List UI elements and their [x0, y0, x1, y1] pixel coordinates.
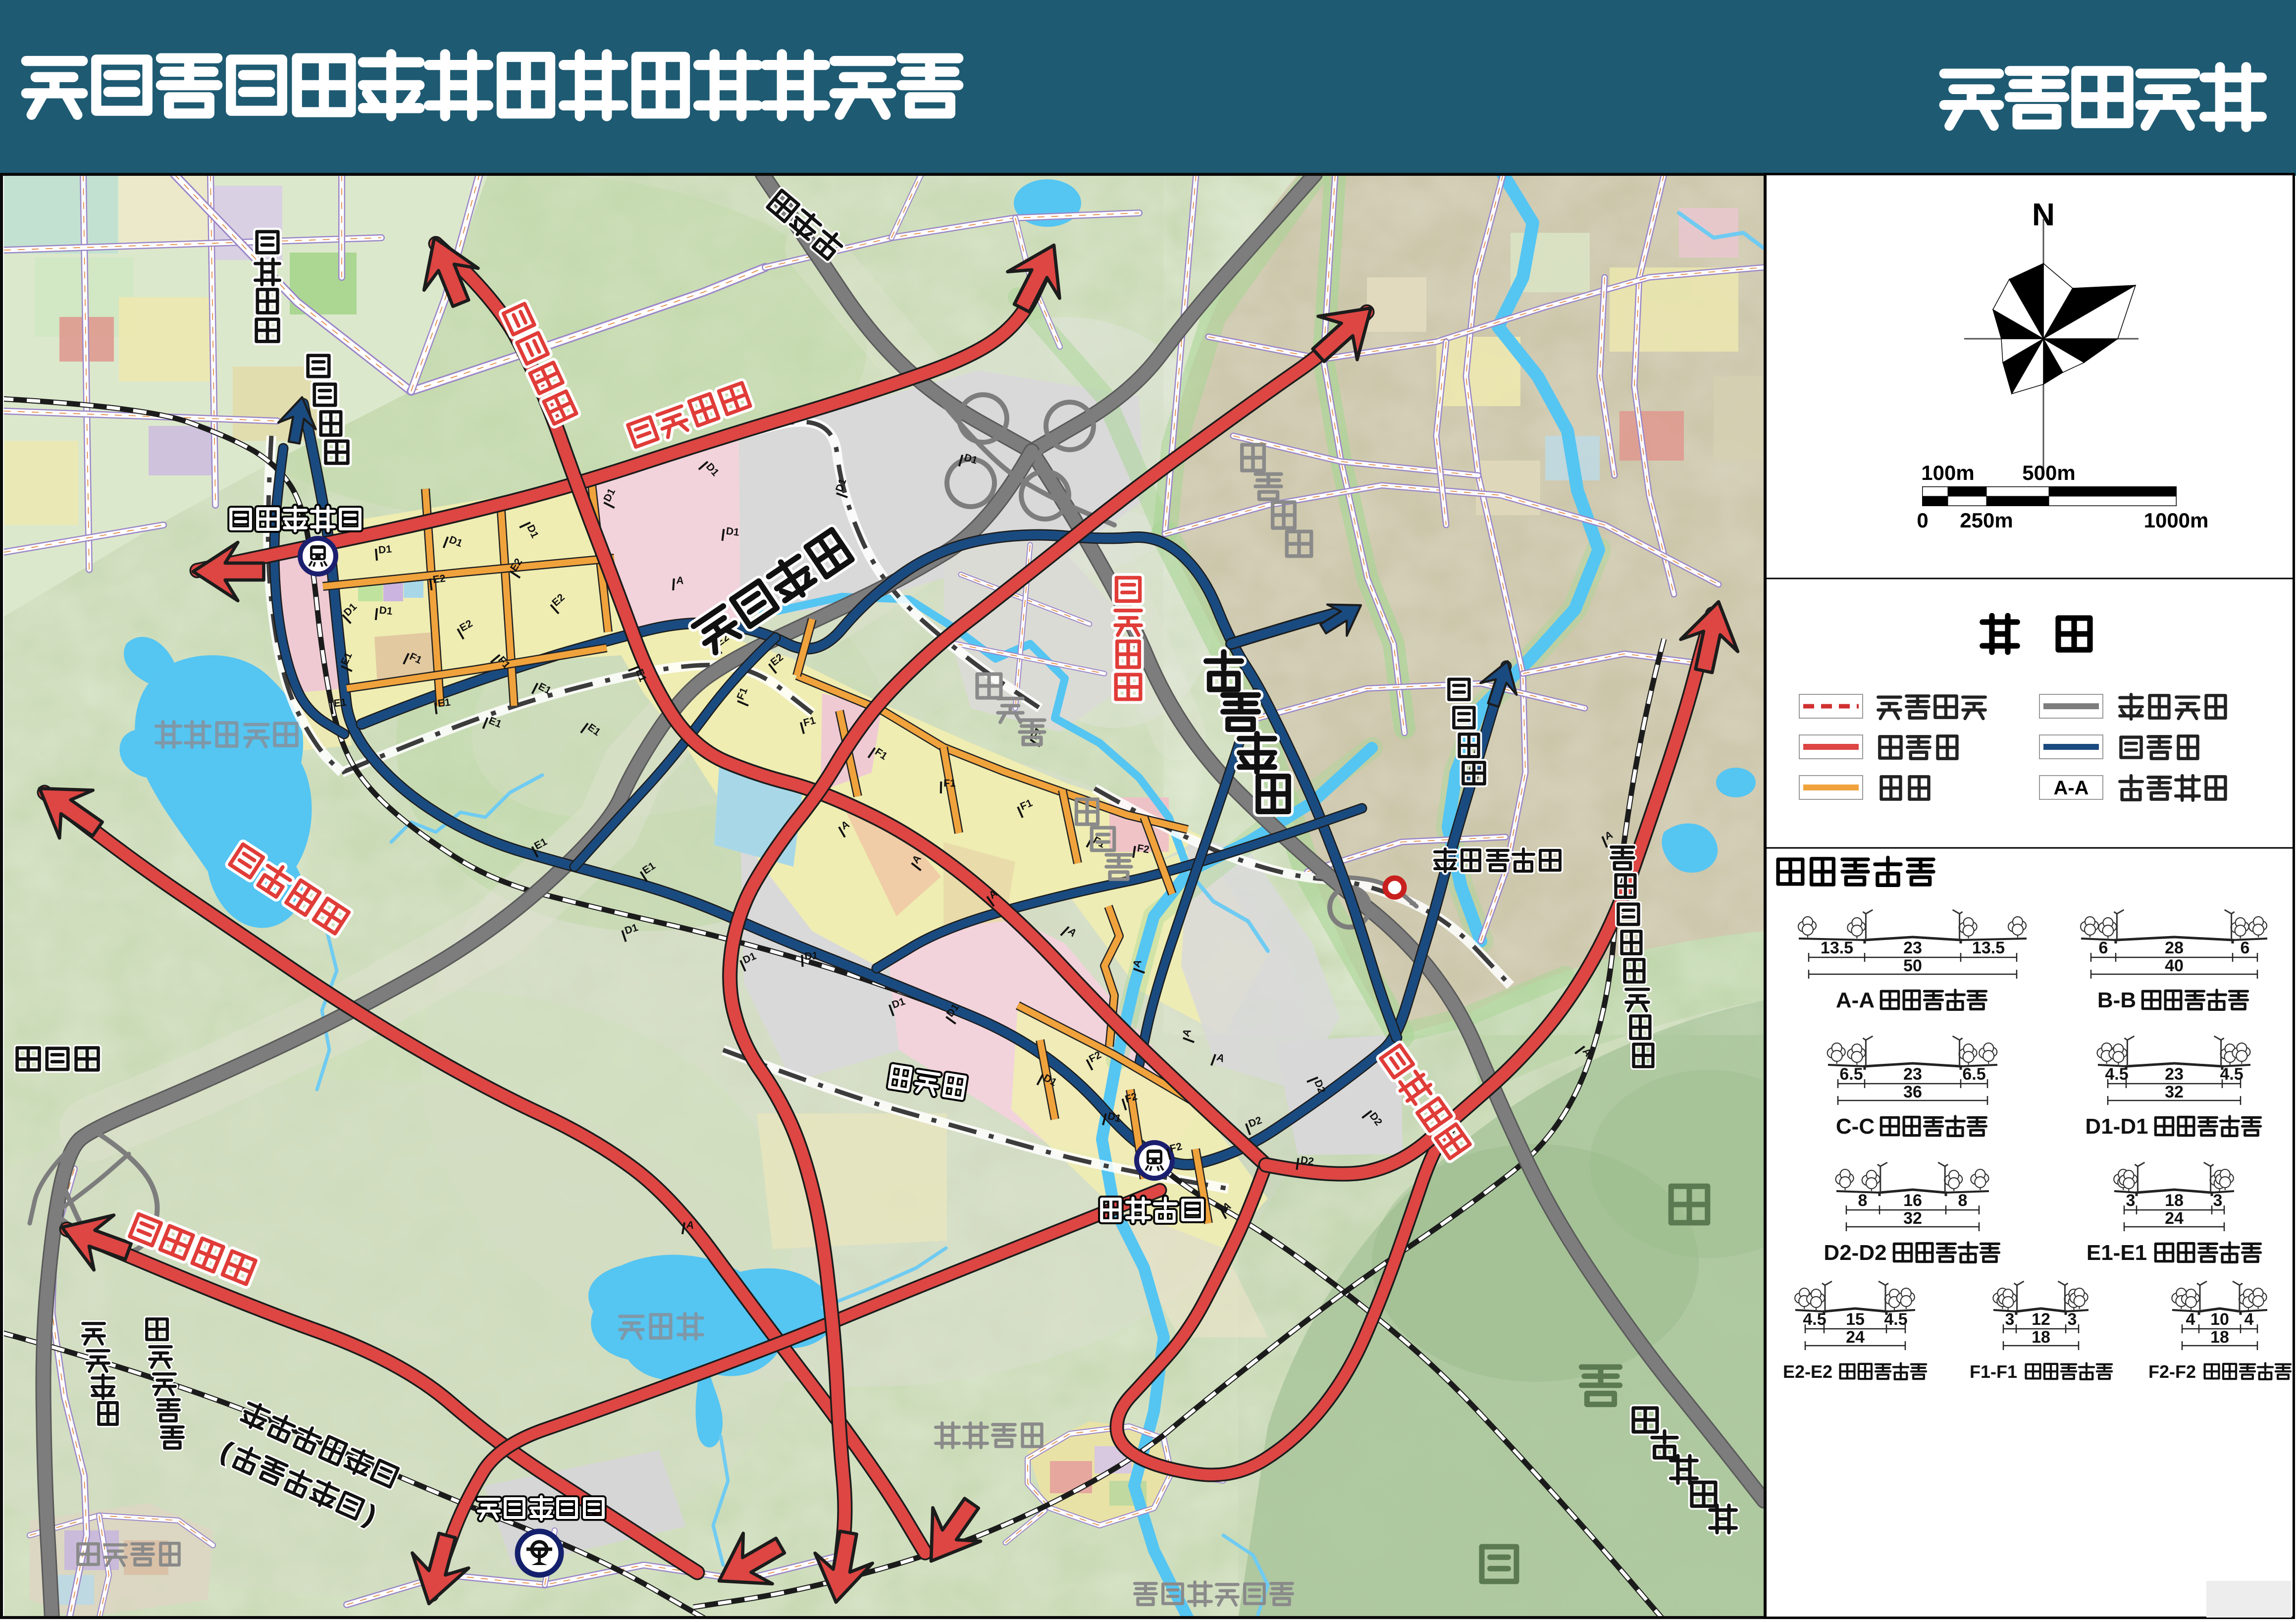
svg-text:3: 3 — [2068, 1310, 2077, 1329]
svg-text:18: 18 — [2032, 1328, 2050, 1347]
svg-text:250m: 250m — [1960, 509, 2013, 532]
svg-text:18: 18 — [2210, 1328, 2229, 1347]
svg-text:B-B: B-B — [2097, 988, 2136, 1012]
svg-text:3: 3 — [2126, 1191, 2136, 1210]
svg-text:24: 24 — [2165, 1209, 2184, 1228]
svg-text:32: 32 — [2165, 1083, 2184, 1101]
svg-text:E2-E2: E2-E2 — [1783, 1361, 1832, 1382]
svg-text:D2-D2: D2-D2 — [1824, 1241, 1886, 1265]
svg-text:4: 4 — [2186, 1310, 2195, 1329]
svg-text:15: 15 — [1846, 1310, 1865, 1329]
svg-text:0: 0 — [1917, 509, 1928, 532]
svg-text:3: 3 — [2005, 1310, 2015, 1329]
svg-text:13.5: 13.5 — [1972, 939, 2005, 957]
svg-text:3: 3 — [2213, 1191, 2223, 1210]
svg-text:6: 6 — [2099, 939, 2108, 957]
svg-text:6: 6 — [2241, 939, 2250, 957]
svg-text:F1-F1: F1-F1 — [1970, 1361, 2017, 1382]
svg-text:23: 23 — [1903, 1065, 1922, 1084]
svg-text:500m: 500m — [2022, 461, 2075, 484]
svg-text:N: N — [2032, 197, 2055, 232]
svg-text:40: 40 — [2165, 956, 2184, 975]
svg-text:4.5: 4.5 — [2220, 1065, 2243, 1084]
svg-text:D1-D1: D1-D1 — [2085, 1114, 2148, 1139]
svg-text:F2-F2: F2-F2 — [2148, 1361, 2196, 1382]
svg-text:13.5: 13.5 — [1821, 939, 1853, 957]
svg-text:50: 50 — [1903, 956, 1922, 975]
svg-text:6.5: 6.5 — [1839, 1065, 1863, 1084]
svg-text:6.5: 6.5 — [1962, 1065, 1985, 1084]
svg-text:A-A: A-A — [2053, 777, 2088, 799]
svg-text:36: 36 — [1903, 1083, 1922, 1101]
svg-text:10: 10 — [2210, 1310, 2229, 1329]
svg-text:24: 24 — [1846, 1328, 1865, 1347]
svg-text:A-A: A-A — [1836, 988, 1875, 1012]
svg-text:23: 23 — [1903, 939, 1922, 957]
svg-text:32: 32 — [1903, 1209, 1922, 1228]
svg-text:C-C: C-C — [1836, 1114, 1875, 1139]
svg-text:1000m: 1000m — [2144, 509, 2209, 532]
svg-text:23: 23 — [2165, 1065, 2184, 1084]
svg-text:4.5: 4.5 — [1803, 1310, 1826, 1329]
svg-text:4: 4 — [2244, 1310, 2254, 1329]
svg-text:8: 8 — [1958, 1191, 1968, 1210]
svg-text:8: 8 — [1858, 1191, 1868, 1210]
svg-text:4.5: 4.5 — [2105, 1065, 2128, 1084]
svg-text:100m: 100m — [1921, 461, 1974, 484]
svg-text:E1-E1: E1-E1 — [2087, 1241, 2147, 1265]
svg-text:12: 12 — [2032, 1310, 2050, 1329]
svg-text:28: 28 — [2165, 939, 2184, 957]
svg-text:4.5: 4.5 — [1884, 1310, 1907, 1329]
svg-text:18: 18 — [2165, 1191, 2184, 1210]
svg-text:16: 16 — [1903, 1191, 1922, 1210]
